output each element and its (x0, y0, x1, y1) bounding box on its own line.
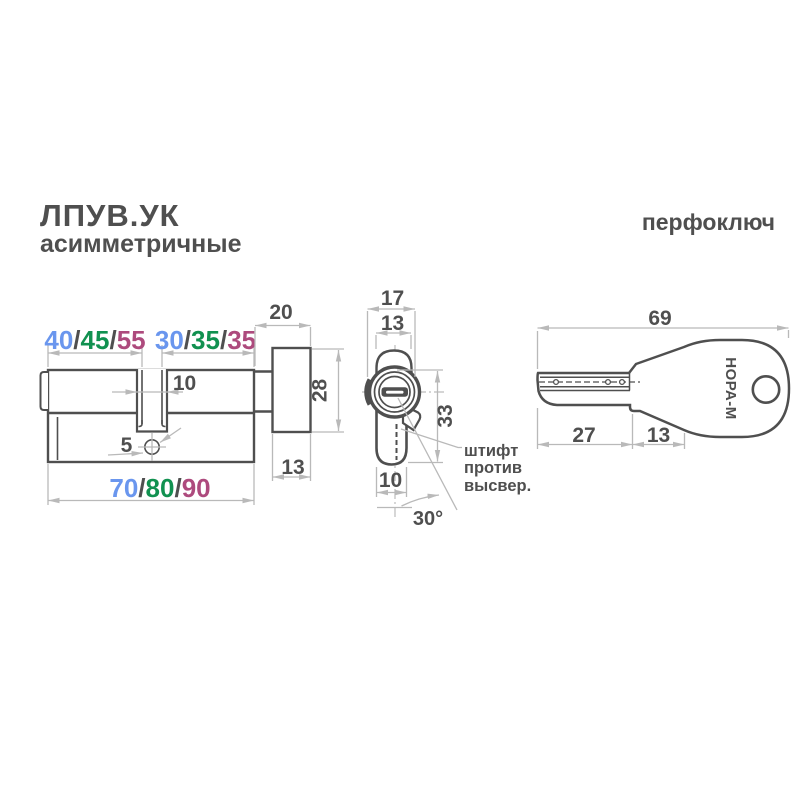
dim-seg-a: 40/45/55 (44, 325, 145, 355)
cylinder-face-cap (41, 372, 49, 410)
dim-seg-b: 30/35/35 (155, 325, 256, 355)
drawing-sheet: ЛПУВ.УК асимметричные перфоключ 40/45/55… (0, 0, 800, 800)
perfo-dimple (554, 380, 559, 385)
dim-body-width: 10 (379, 469, 402, 492)
dim-cam-width: 10 (173, 372, 196, 395)
keyway-slot-inner (386, 391, 404, 394)
key-bow-hole (753, 376, 779, 402)
dim-height: 33 (434, 404, 457, 427)
key-brand: НОРА-М (722, 357, 739, 420)
dim-screw-hole: 5 (121, 434, 133, 457)
note-line-1: штифт (464, 442, 518, 460)
perfo-dimple (620, 380, 625, 385)
perfo-dimple (606, 380, 611, 385)
note-line-3: высвер. (464, 477, 531, 495)
page-title: ЛПУВ.УК (40, 198, 180, 233)
dim-neck-length: 13 (647, 424, 670, 447)
note-line-2: против (464, 459, 522, 477)
dim-overall-width: 17 (381, 287, 404, 310)
key-view: НОРА-М 69 27 13 (538, 307, 790, 449)
dim-plug-width: 13 (381, 312, 404, 335)
dim-knob-width: 13 (281, 456, 304, 479)
page-subtitle: асимметричные (40, 230, 242, 258)
dim-total-length: 69 (648, 307, 671, 330)
thumb-turn-knob (273, 348, 311, 432)
note-leader (401, 429, 462, 448)
front-view: 17 13 33 10 30° штифт против высвер. (362, 287, 531, 530)
dim-cam-angle: 30° (413, 508, 443, 530)
key-outline (538, 340, 790, 437)
dim-seg-total: 70/80/90 (109, 473, 210, 503)
dim-knob-depth: 20 (269, 301, 292, 324)
side-view: 40/45/55 30/35/35 10 5 70/80/90 20 28 13 (41, 301, 345, 505)
dim-knob-height: 28 (309, 379, 332, 403)
key-type-label: перфоключ (642, 209, 775, 235)
technical-drawing: ЛПУВ.УК асимметричные перфоключ 40/45/55… (0, 0, 800, 800)
dim-blade-length: 27 (572, 424, 595, 447)
